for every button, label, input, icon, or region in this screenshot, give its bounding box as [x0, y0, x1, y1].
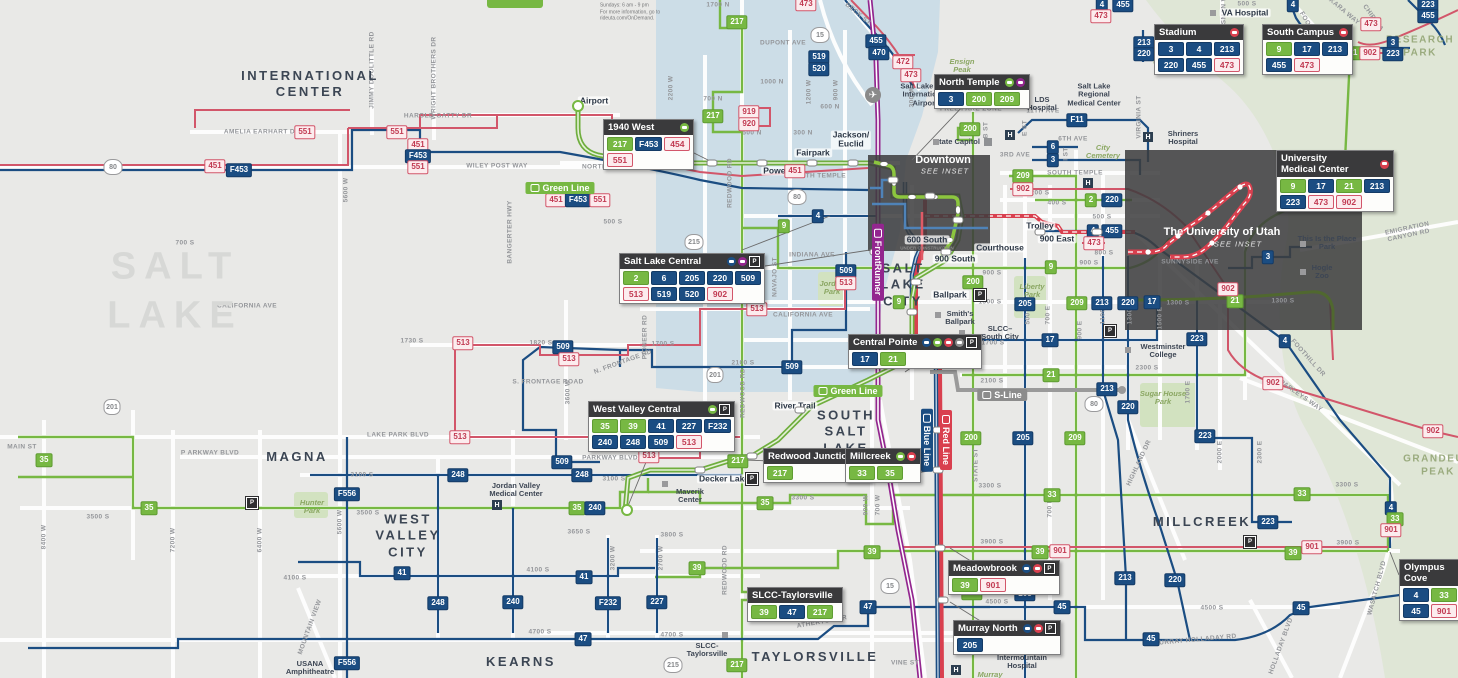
route-badge-473: 473	[900, 68, 921, 82]
route-badge-223: 223	[1382, 47, 1403, 61]
callout-route-list: 917213455473	[1263, 40, 1352, 74]
callout-mode-icons: P	[727, 256, 760, 267]
callout-mode-icons	[1230, 28, 1239, 37]
callout-title-text: North Temple	[939, 77, 1000, 88]
place-marker-icon	[1300, 269, 1306, 275]
route-chip-455: 455	[1266, 58, 1292, 72]
callout-title: Stadium	[1155, 25, 1243, 40]
park-and-ride-icon: P	[246, 497, 258, 509]
blue-line-icon	[1022, 564, 1031, 573]
line-label-green-line: Green Line	[525, 182, 594, 194]
route-chip-39: 39	[620, 419, 646, 433]
callout-title: MeadowbrookP	[949, 561, 1059, 576]
route-badge-39: 39	[1285, 546, 1302, 560]
route-chip-217: 217	[607, 137, 633, 151]
callout-route-list: 3335	[846, 464, 920, 482]
callout-route-row: 3335	[849, 466, 917, 480]
train-icon	[982, 391, 991, 399]
place-marker-icon	[1125, 347, 1131, 353]
highway-shield-15-icon: 15	[811, 27, 830, 43]
route-chip-17: 17	[852, 352, 878, 366]
callout-route-list: 3200209	[935, 90, 1029, 108]
line-label-text: Green Line	[830, 386, 877, 396]
station-marker	[911, 279, 922, 286]
callout-title: 1940 West	[604, 120, 693, 135]
place-marker-icon	[662, 481, 668, 487]
route-badge-4: 4	[1287, 0, 1299, 12]
route-badge-217: 217	[727, 454, 748, 468]
callout-route-row: 39901	[952, 578, 1056, 592]
route-badge-472: 472	[892, 55, 913, 69]
route-chip-39: 39	[751, 605, 777, 619]
route-badge-9: 9	[893, 295, 905, 309]
station-callout-west-valley-central: West Valley CentralP353941227F2322402485…	[588, 401, 735, 452]
callout-route-row: 513519520902	[623, 287, 761, 301]
s-line-icon	[955, 338, 964, 347]
route-badge-205: 205	[1014, 297, 1035, 311]
route-badge-513: 513	[452, 336, 473, 350]
callout-title-text: Millcreek	[850, 451, 891, 462]
route-chip-4: 4	[1403, 588, 1429, 602]
red-line-icon	[907, 452, 916, 461]
route-badge-513: 513	[835, 276, 856, 290]
callout-mode-icons: P	[708, 404, 730, 415]
callout-route-row: 3200209	[938, 92, 1026, 106]
route-chip-227: 227	[676, 419, 702, 433]
route-badge-35: 35	[569, 501, 586, 515]
station-marker	[935, 545, 946, 552]
route-badge-223: 223	[1186, 332, 1207, 346]
route-chip-513: 513	[623, 287, 649, 301]
route-badge-240: 240	[502, 595, 523, 609]
route-badge-F11: F11	[1066, 113, 1087, 127]
route-badge-45: 45	[1293, 601, 1310, 615]
route-badge-6: 6	[1047, 140, 1059, 154]
route-badge-473: 473	[1083, 236, 1104, 250]
route-badge-220: 220	[1133, 47, 1154, 61]
station-marker	[747, 453, 758, 460]
route-badge-217: 217	[726, 15, 747, 29]
station-marker	[795, 407, 806, 414]
route-badge-240: 240	[584, 501, 605, 515]
route-chip-35: 35	[877, 466, 903, 480]
route-badge-35: 35	[141, 501, 158, 515]
callout-route-list: 4333945901	[1400, 586, 1458, 620]
route-badge-213: 213	[1114, 571, 1135, 585]
route-chip-902: 902	[707, 287, 733, 301]
callout-mode-icons	[1005, 78, 1025, 87]
callout-mode-icons: P	[922, 337, 977, 348]
route-chip-248: 248	[620, 435, 646, 449]
terminal-station-marker	[621, 504, 633, 516]
station-marker	[707, 160, 718, 167]
route-badge-509: 509	[551, 455, 572, 469]
route-chip-509: 509	[735, 271, 761, 285]
station-marker	[907, 309, 918, 316]
callout-title: SLCC-Taylorsville	[748, 588, 842, 603]
callout-route-list: 1721	[849, 350, 981, 368]
route-badge-220: 220	[1117, 400, 1138, 414]
place-marker-icon	[935, 312, 941, 318]
park-and-ride-icon: P	[1045, 623, 1056, 634]
route-chip-455: 455	[1186, 58, 1212, 72]
route-chip-901: 901	[1431, 604, 1457, 618]
route-chip-213: 213	[1364, 179, 1390, 193]
callout-route-list: 217F453454551	[604, 135, 693, 169]
route-chip-217: 217	[767, 466, 793, 480]
route-chip-217: 217	[807, 605, 833, 619]
route-badge-35: 35	[757, 496, 774, 510]
callout-mode-icons	[1339, 28, 1348, 37]
park-and-ride-icon: P	[1044, 563, 1055, 574]
callout-title: Murray NorthP	[954, 621, 1060, 636]
route-chip-21: 21	[1336, 179, 1362, 193]
route-badge-33: 33	[1044, 488, 1061, 502]
red-line-icon	[1339, 28, 1348, 37]
route-badge-223: 223	[1194, 429, 1215, 443]
red-line-icon	[1230, 28, 1239, 37]
callout-title-text: SLCC-Taylorsville	[752, 590, 833, 601]
callout-route-row: 455473	[1266, 58, 1349, 72]
route-badge-200: 200	[960, 431, 981, 445]
station-callout-university-medical-center: University Medical Center917212132234739…	[1276, 150, 1394, 212]
highway-shield-80-icon: 80	[104, 159, 123, 175]
route-badge-248: 248	[447, 468, 468, 482]
highway-shield-80-icon: 80	[1085, 396, 1104, 412]
route-badge-39: 39	[689, 561, 706, 575]
park-and-ride-icon: P	[719, 404, 730, 415]
route-chip-33: 33	[849, 466, 875, 480]
route-badge-455: 455	[1417, 9, 1438, 23]
hospital-icon: H	[1143, 132, 1153, 142]
line-label-red-line: Red Line	[940, 410, 952, 470]
blue-line-icon	[922, 338, 931, 347]
train-icon	[874, 229, 882, 238]
place-marker-icon	[722, 632, 728, 638]
callout-title-text: Murray North	[958, 623, 1018, 634]
green-line-icon	[680, 123, 689, 132]
route-badge-248: 248	[571, 468, 592, 482]
highway-shield-201-icon: 201	[104, 399, 121, 415]
train-icon	[530, 184, 539, 192]
callout-route-list: 34213220455473	[1155, 40, 1243, 74]
callout-title-text: Meadowbrook	[953, 563, 1017, 574]
callout-route-list: 26205220509513519520902	[620, 269, 764, 303]
callout-title: South Campus	[1263, 25, 1352, 40]
route-badge-902: 902	[1262, 376, 1283, 390]
route-chip-551: 551	[607, 153, 633, 167]
callout-title: Millcreek	[846, 449, 920, 464]
line-label-blue-line: Blue Line	[921, 409, 933, 472]
transit-map: AMELIA EARHART DRHAROLD GATTY DRWILEY PO…	[0, 0, 1458, 678]
callout-title-text: Redwood Junction	[768, 451, 853, 462]
route-chip-2: 2	[623, 271, 649, 285]
route-chip-213: 213	[1214, 42, 1240, 56]
route-chip-33: 33	[1431, 588, 1457, 602]
route-badge-F453: F453	[226, 163, 252, 177]
route-badge-200: 200	[959, 122, 980, 136]
line-label-text: Green Line	[542, 183, 589, 193]
park-and-ride-icon: P	[1104, 325, 1116, 337]
route-badge-4: 4	[812, 209, 824, 223]
route-badge-47: 47	[860, 600, 877, 614]
route-badge-551: 551	[407, 160, 428, 174]
callout-route-row: 1721	[852, 352, 978, 366]
route-chip-3: 3	[938, 92, 964, 106]
route-chip-454: 454	[664, 137, 690, 151]
route-chip-220: 220	[1158, 58, 1184, 72]
place-marker-icon	[1210, 10, 1216, 16]
route-badge-213: 213	[1096, 382, 1117, 396]
route-chip-520: 520	[679, 287, 705, 301]
route-badge-223: 223	[1257, 515, 1278, 529]
route-chip-6: 6	[651, 271, 677, 285]
callout-title: University Medical Center	[1277, 151, 1393, 177]
route-badge-41: 41	[576, 570, 593, 584]
hospital-icon: H	[1005, 130, 1015, 140]
route-badge-451: 451	[204, 159, 225, 173]
route-badge-3: 3	[1262, 250, 1274, 264]
route-badge-4: 4	[1279, 334, 1291, 348]
station-marker	[695, 467, 706, 474]
route-badge-473: 473	[795, 0, 816, 11]
route-chip-4: 4	[1186, 42, 1212, 56]
route-chip-41: 41	[648, 419, 674, 433]
airport-icon: ✈	[865, 87, 881, 103]
line-label-green-line: Green Line	[813, 385, 882, 397]
park-and-ride-icon: P	[1244, 536, 1256, 548]
callout-mode-icons: P	[1023, 623, 1056, 634]
line-label-text: FrontRunner	[873, 241, 883, 296]
callout-route-row: 34213	[1158, 42, 1240, 56]
route-chip-473: 473	[1294, 58, 1320, 72]
route-badge-217: 217	[702, 109, 723, 123]
callout-title: Olympus CoveP	[1400, 560, 1458, 586]
route-badge-3: 3	[1047, 153, 1059, 167]
callout-route-row: 26205220509	[623, 271, 761, 285]
note-green-tab	[487, 0, 543, 8]
station-callout-salt-lake-central: Salt Lake CentralP2620522050951351952090…	[619, 253, 765, 304]
callout-route-row: 551	[607, 153, 690, 167]
route-chip-9: 9	[1280, 179, 1306, 193]
callout-route-row: 3947217	[751, 605, 839, 619]
route-chip-223: 223	[1280, 195, 1306, 209]
route-badge-F556: F556	[334, 487, 360, 501]
highway-shield-201-icon: 201	[707, 367, 724, 383]
callout-route-row: 217F453454	[607, 137, 690, 151]
route-badge-451: 451	[545, 193, 566, 207]
line-label-s-line: S-Line	[977, 389, 1027, 401]
station-marker	[941, 249, 952, 256]
callout-title-text: Salt Lake Central	[624, 256, 701, 267]
hospital-icon: H	[951, 665, 961, 675]
callout-route-row: 223473902	[1280, 195, 1390, 209]
route-badge-551: 551	[386, 125, 407, 139]
callout-route-row: 240248509513	[592, 435, 731, 449]
route-badge-17: 17	[1042, 333, 1059, 347]
place-marker-icon	[1300, 241, 1306, 247]
capitol-icon	[984, 138, 992, 146]
route-chip-21: 21	[880, 352, 906, 366]
route-badge-9: 9	[778, 219, 790, 233]
route-chip-519: 519	[651, 287, 677, 301]
line-label-text: Red Line	[941, 427, 951, 465]
route-chip-45: 45	[1403, 604, 1429, 618]
blue-line-icon	[1023, 624, 1032, 633]
route-badge-473: 473	[1090, 9, 1111, 23]
route-badge-217: 217	[726, 658, 747, 672]
route-badge-455: 455	[1101, 224, 1122, 238]
route-badge-227: 227	[646, 595, 667, 609]
route-badge-F232: F232	[595, 596, 621, 610]
route-badge-902: 902	[1422, 424, 1443, 438]
route-badge-205: 205	[1012, 431, 1033, 445]
callout-mode-icons	[680, 123, 689, 132]
route-badge-220: 220	[1101, 193, 1122, 207]
station-callout-north-temple: North Temple3200209	[934, 74, 1030, 109]
route-chip-3: 3	[1158, 42, 1184, 56]
route-chip-200: 200	[966, 92, 992, 106]
map-canvas	[0, 0, 1458, 678]
line-label-text: Blue Line	[922, 426, 932, 467]
route-badge-17: 17	[1144, 295, 1161, 309]
hospital-icon: H	[1083, 178, 1093, 188]
route-badge-45: 45	[1143, 632, 1160, 646]
train-icon	[818, 387, 827, 395]
route-badge-9: 9	[1045, 260, 1057, 274]
route-badge-248: 248	[427, 596, 448, 610]
callout-title-text: Central Pointe	[853, 337, 917, 348]
highway-shield-215-icon: 215	[685, 234, 704, 250]
route-badge-902: 902	[1012, 182, 1033, 196]
route-badge-551: 551	[589, 193, 610, 207]
route-chip-17: 17	[1308, 179, 1334, 193]
green-line-icon	[933, 338, 942, 347]
frontrunner-icon	[1016, 78, 1025, 87]
route-chip-213: 213	[1322, 42, 1348, 56]
route-badge-209: 209	[1012, 169, 1033, 183]
route-badge-220: 220	[1117, 296, 1138, 310]
train-icon	[942, 415, 950, 424]
route-chip-35: 35	[592, 419, 618, 433]
highway-shield-215-icon: 215	[664, 657, 683, 673]
route-badge-455: 455	[1112, 0, 1133, 12]
route-badge-35: 35	[36, 453, 53, 467]
green-line-icon	[896, 452, 905, 461]
callout-route-list: 3947217	[748, 603, 842, 621]
red-line-icon	[1033, 564, 1042, 573]
route-chip-39: 39	[952, 578, 978, 592]
route-badge-520: 520	[808, 62, 829, 76]
route-badge-21: 21	[1227, 294, 1244, 308]
park-and-ride-icon: P	[966, 337, 977, 348]
callout-mode-icons	[896, 452, 916, 461]
station-marker	[807, 160, 818, 167]
station-callout-south-campus: South Campus917213455473	[1262, 24, 1353, 75]
station-callout-millcreek-station: Millcreek3335	[845, 448, 921, 483]
service-note: Sundays: 6 am - 9 pm For more informatio…	[600, 2, 660, 22]
route-chip-47: 47	[779, 605, 805, 619]
route-badge-513: 513	[746, 302, 767, 316]
station-marker	[1092, 229, 1103, 236]
route-badge-513: 513	[558, 352, 579, 366]
callout-title-text: Olympus Cove	[1404, 562, 1458, 584]
inset-label-university: The University of Utah	[1164, 226, 1281, 238]
callout-route-list: 91721213223473902	[1277, 177, 1393, 211]
station-marker	[938, 597, 949, 604]
inset-sublabel-downtown: SEE INSET	[921, 167, 969, 176]
route-chip-509: 509	[648, 435, 674, 449]
callout-route-row: 91721213	[1280, 179, 1390, 193]
route-badge-551: 551	[294, 125, 315, 139]
station-marker	[888, 177, 899, 184]
route-badge-920: 920	[738, 117, 759, 131]
highway-shield-80-icon: 80	[788, 189, 807, 205]
route-chip-473: 473	[1214, 58, 1240, 72]
highway-shield-15-icon: 15	[881, 578, 900, 594]
red-line-icon	[1380, 160, 1389, 169]
route-badge-451: 451	[784, 164, 805, 178]
route-badge-41: 41	[394, 566, 411, 580]
station-marker	[1035, 229, 1046, 236]
callout-title-text: West Valley Central	[593, 404, 680, 415]
callout-route-row: 43339	[1403, 588, 1458, 602]
route-chip-513: 513	[676, 435, 702, 449]
route-chip-17: 17	[1294, 42, 1320, 56]
route-chip-9: 9	[1266, 42, 1292, 56]
line-label-text: S-Line	[994, 390, 1022, 400]
route-chip-205: 205	[679, 271, 705, 285]
red-line-icon	[944, 338, 953, 347]
inset-label-downtown: Downtown	[915, 154, 971, 166]
route-badge-F556: F556	[334, 656, 360, 670]
route-chip-205: 205	[957, 638, 983, 652]
inset-sublabel-university: SEE INSET	[1214, 240, 1262, 249]
station-callout-1940-west: 1940 West217F453454551	[603, 119, 694, 170]
park-and-ride-icon: P	[746, 473, 758, 485]
frontrunner-icon	[738, 257, 747, 266]
route-badge-473: 473	[1360, 17, 1381, 31]
callout-route-row: 205	[957, 638, 1057, 652]
callout-route-row: 220455473	[1158, 58, 1240, 72]
blue-line-icon	[727, 257, 736, 266]
callout-route-list: 353941227F232240248509513	[589, 417, 734, 451]
route-chip-473: 473	[1308, 195, 1334, 209]
callout-title-text: Stadium	[1159, 27, 1196, 38]
route-badge-47: 47	[575, 632, 592, 646]
station-callout-central-pointe: Central PointeP1721	[848, 334, 982, 369]
route-chip-F232: F232	[704, 419, 731, 433]
route-badge-470: 470	[868, 46, 889, 60]
callout-title: West Valley CentralP	[589, 402, 734, 417]
route-chip-901: 901	[980, 578, 1006, 592]
station-callout-slcc-taylorsville: SLCC-Taylorsville3947217	[747, 587, 843, 622]
route-chip-902: 902	[1336, 195, 1362, 209]
callout-title-text: University Medical Center	[1281, 153, 1349, 175]
route-badge-213: 213	[1091, 296, 1112, 310]
station-marker	[953, 217, 964, 224]
train-icon	[923, 414, 931, 423]
station-marker	[848, 160, 859, 167]
station-callout-meadowbrook: MeadowbrookP39901	[948, 560, 1060, 595]
callout-title: North Temple	[935, 75, 1029, 90]
route-badge-39: 39	[864, 545, 881, 559]
park-and-ride-icon: P	[749, 256, 760, 267]
callout-title-text: South Campus	[1267, 27, 1334, 38]
green-line-icon	[1005, 78, 1014, 87]
callout-route-list: 205	[954, 636, 1060, 654]
park-and-ride-icon: P	[974, 289, 986, 301]
